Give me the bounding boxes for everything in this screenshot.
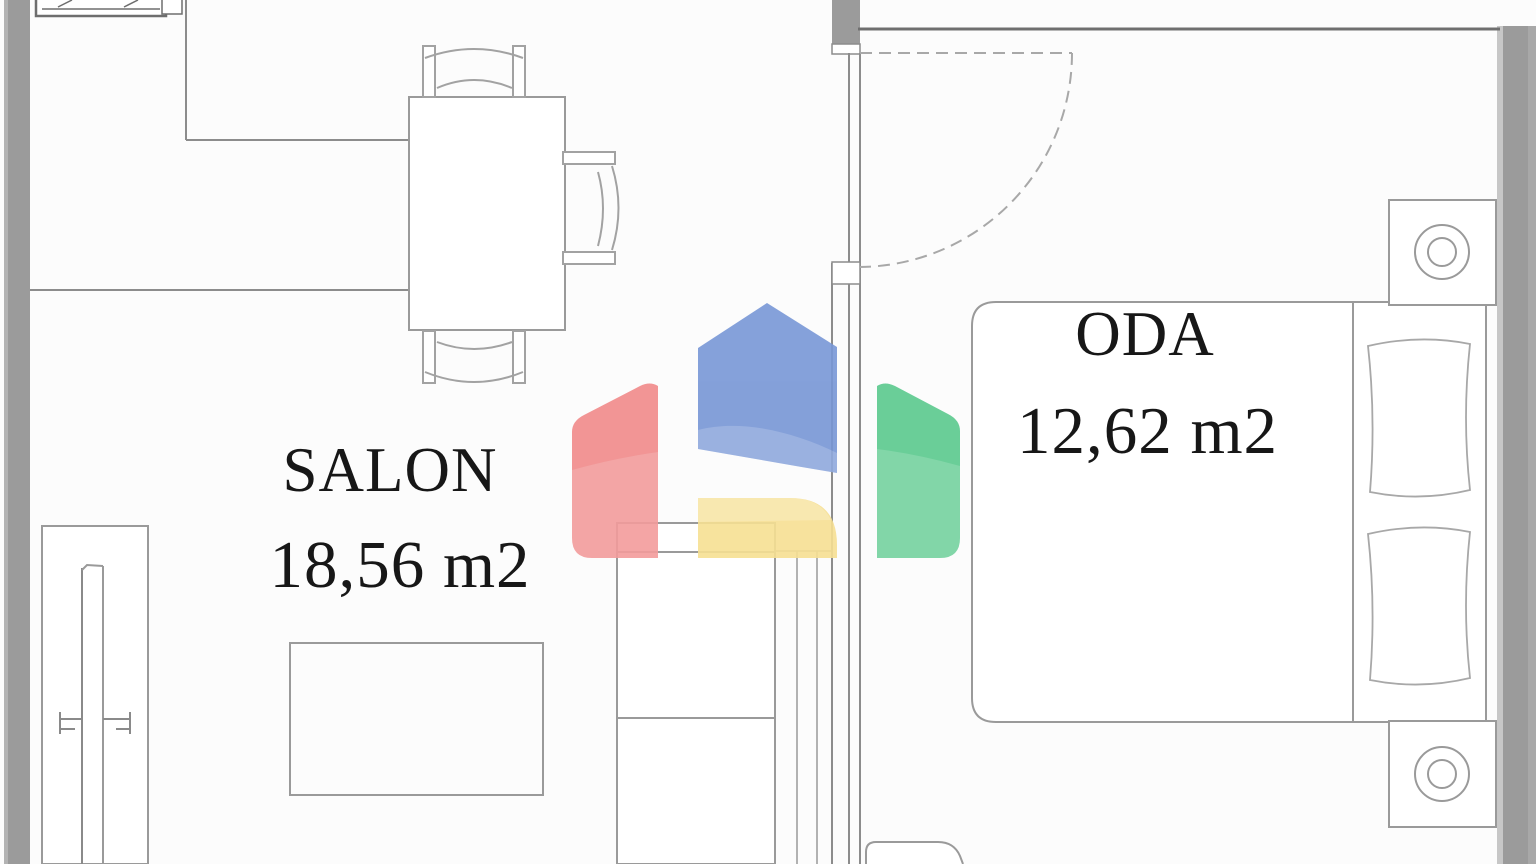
pillow-top xyxy=(1368,339,1470,496)
salon-area-label: 18,56 m2 xyxy=(225,530,575,600)
wall-stub-top xyxy=(832,0,860,54)
nightstand-bottom xyxy=(1389,721,1496,827)
bottom-cabinet-partial xyxy=(866,842,963,864)
watermark-house-icon xyxy=(572,303,960,558)
window-left xyxy=(42,526,148,864)
tv-unit xyxy=(617,523,831,864)
dining-chair-bottom xyxy=(423,331,525,383)
pillow-bottom xyxy=(1368,527,1470,684)
dining-chair-top xyxy=(423,46,525,97)
kitchen-partition xyxy=(30,0,409,290)
salon-rug xyxy=(290,643,543,795)
dining-chair-right xyxy=(563,152,619,264)
sofa-top-partial xyxy=(36,0,182,16)
exterior-wall-left xyxy=(4,0,30,864)
oda-room-label: ODA xyxy=(995,301,1295,367)
door-swing xyxy=(858,53,1072,267)
floor-plan: SALON 18,56 m2 ODA 12,62 m2 xyxy=(0,0,1536,864)
exterior-wall-right xyxy=(1497,26,1536,864)
nightstand-top xyxy=(1389,200,1496,305)
oda-area-label: 12,62 m2 xyxy=(975,396,1320,466)
salon-room-label: SALON xyxy=(240,437,540,503)
dining-table xyxy=(409,97,565,330)
